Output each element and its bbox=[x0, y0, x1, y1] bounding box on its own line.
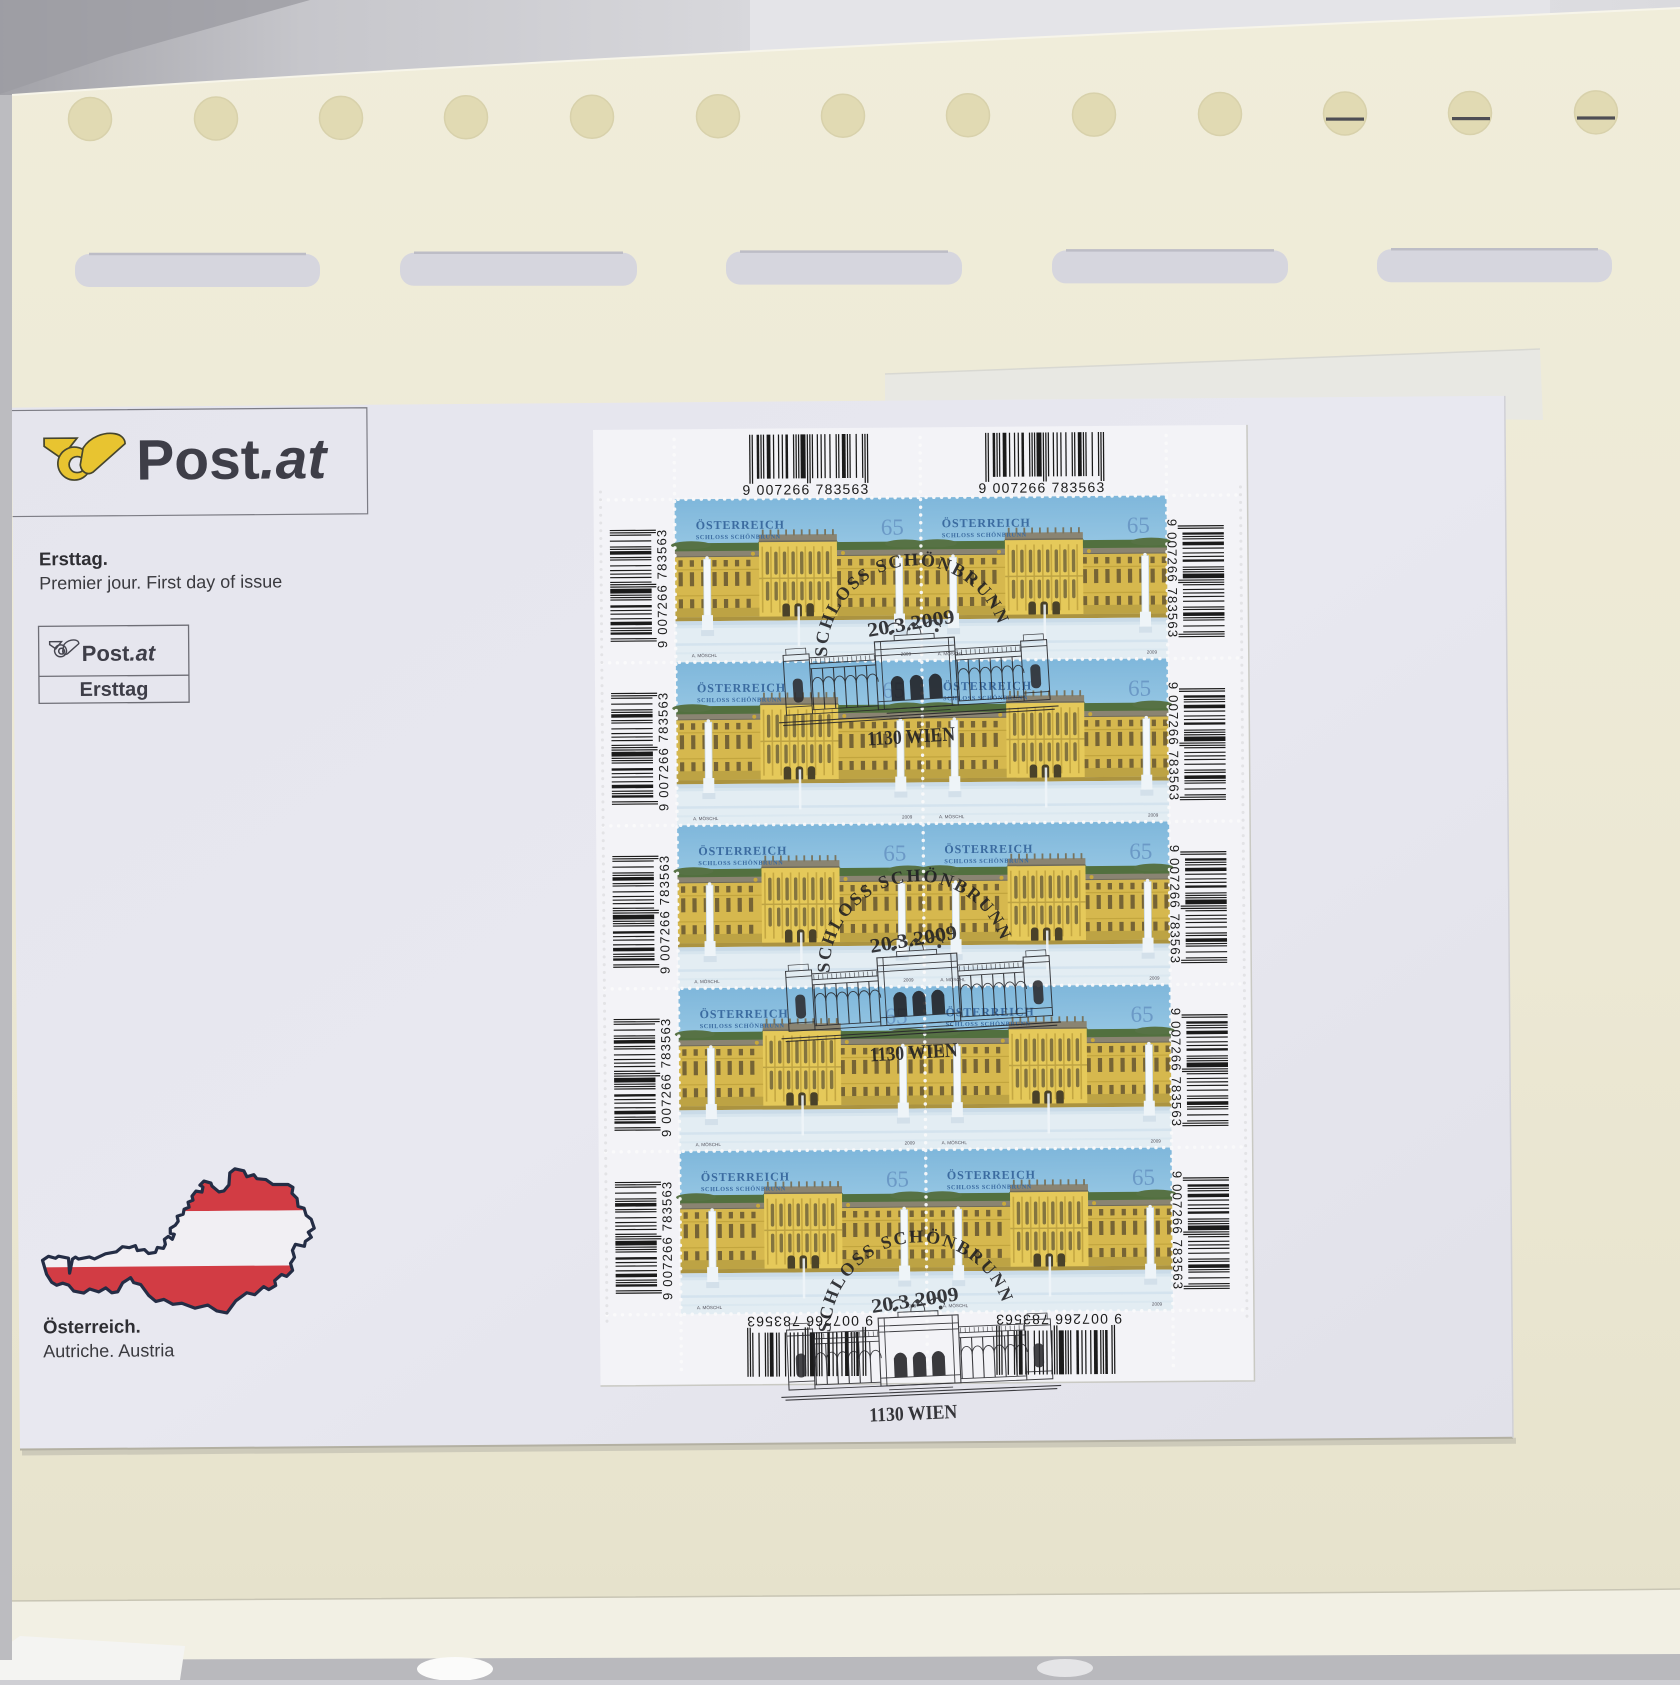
svg-text:Premier jour. First day of iss: Premier jour. First day of issue bbox=[39, 571, 282, 593]
svg-text:Autriche. Austria: Autriche. Austria bbox=[43, 1340, 175, 1361]
svg-text:Ersttag: Ersttag bbox=[79, 678, 148, 701]
svg-text:Post.at: Post.at bbox=[136, 427, 329, 493]
svg-text:Post.at: Post.at bbox=[82, 640, 157, 666]
svg-text:Österreich.: Österreich. bbox=[43, 1316, 141, 1338]
svg-text:Ersttag.: Ersttag. bbox=[39, 548, 108, 570]
